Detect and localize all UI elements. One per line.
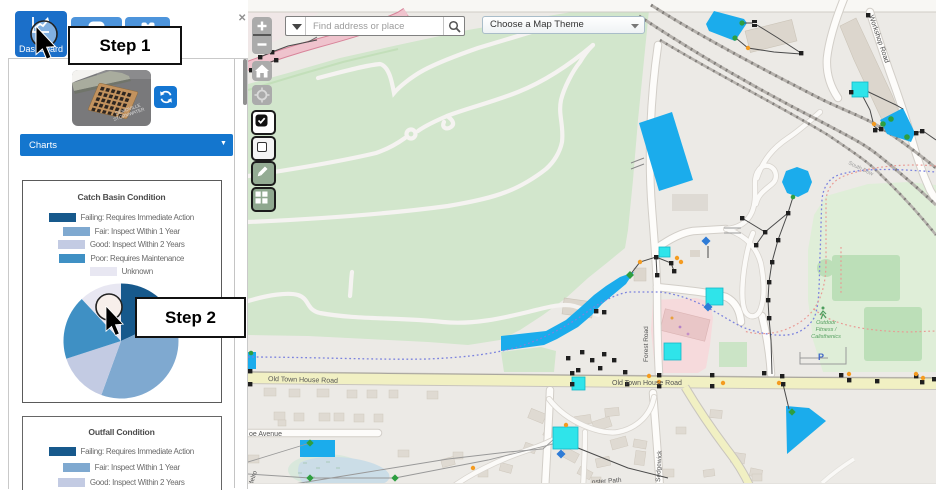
svg-text:Calisthenics: Calisthenics [811,334,841,340]
svg-text:Old Town House Road: Old Town House Road [612,380,682,387]
svg-text:Forest Road: Forest Road [643,326,650,362]
svg-text:Fitness /: Fitness / [816,327,837,333]
svg-text:oe Avenue: oe Avenue [249,431,282,438]
svg-text:P: P [818,352,824,362]
svg-text:Outdoor: Outdoor [816,320,837,326]
